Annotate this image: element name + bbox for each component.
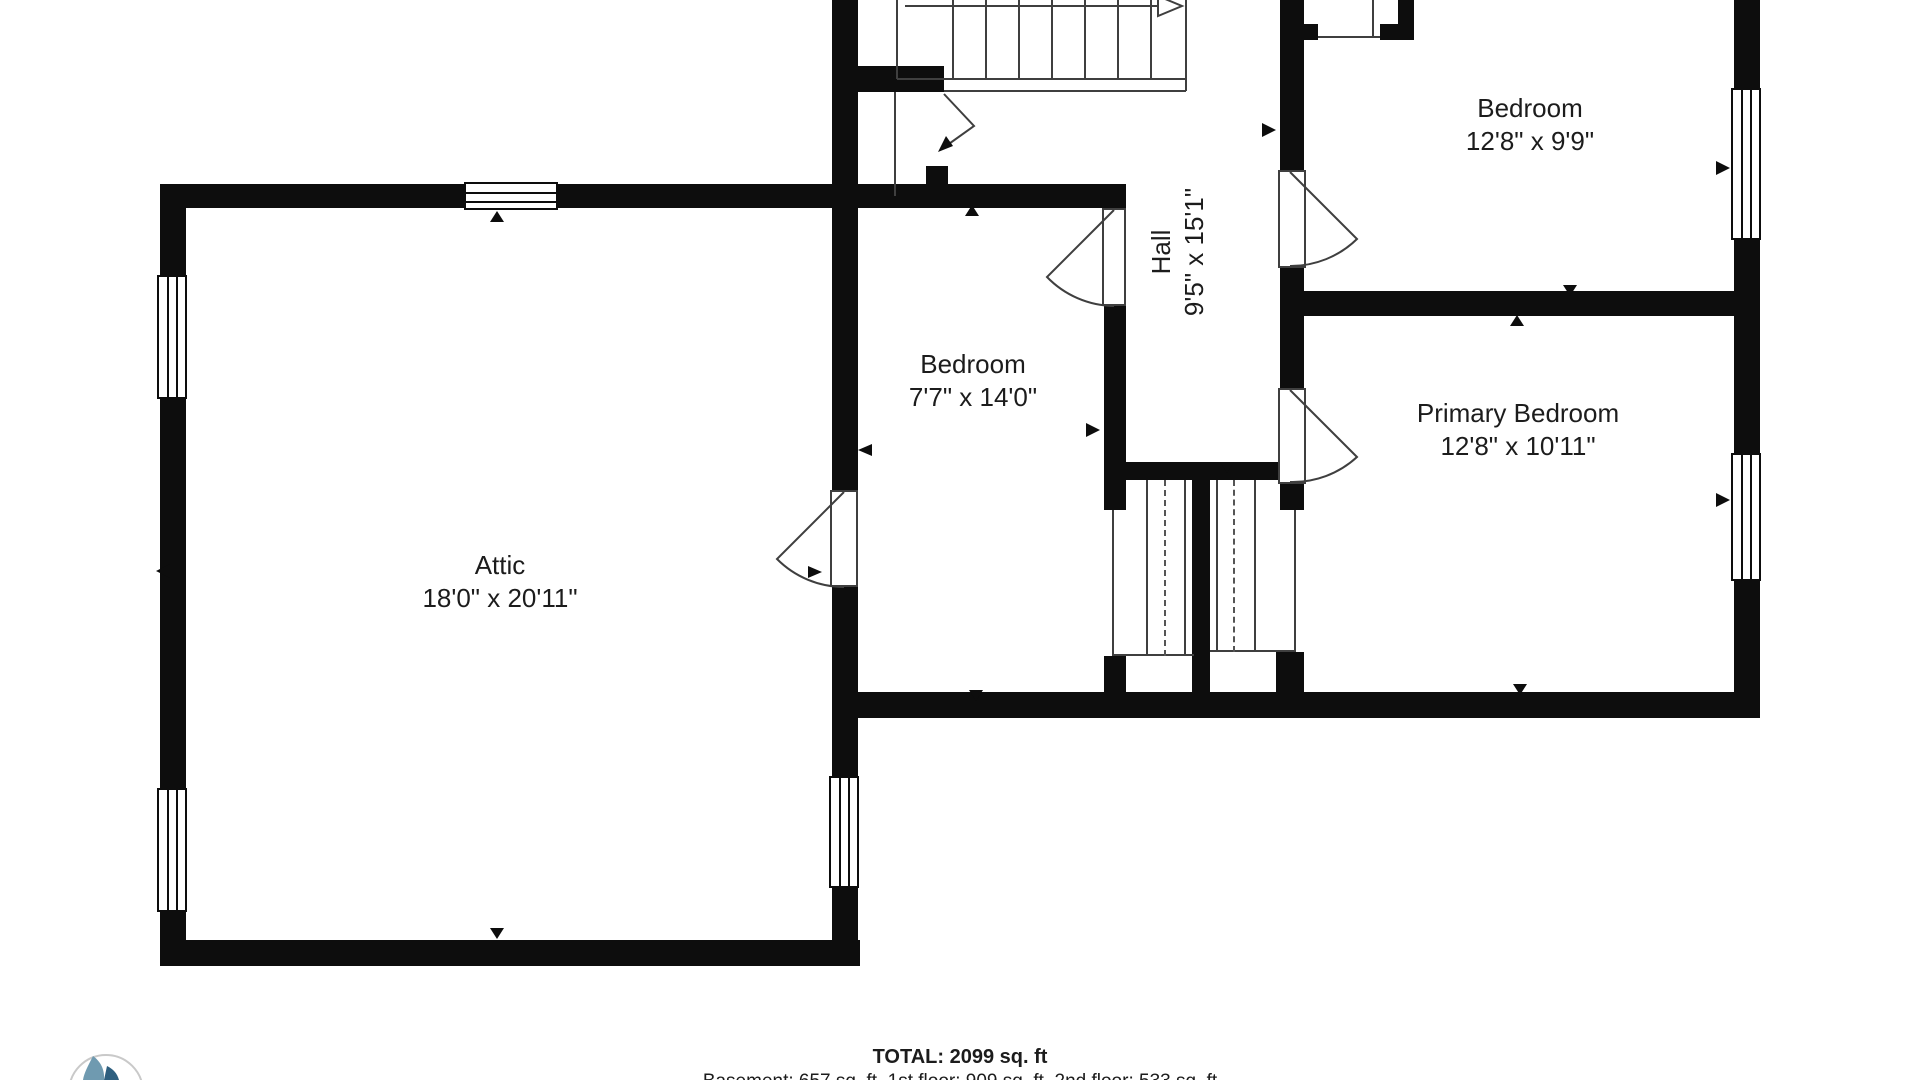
room-dimensions: 12'8" x 10'11" — [1417, 430, 1619, 463]
room-name: Attic — [422, 549, 577, 582]
room-name: Primary Bedroom — [1417, 397, 1619, 430]
room-dimensions: 9'5" x 15'1" — [1178, 188, 1211, 316]
staircase — [897, 0, 1186, 91]
area-breakdown-text: Basement: 657 sq. ft, 1st floor: 909 sq.… — [0, 1071, 1920, 1080]
room-dimensions: 18'0" x 20'11" — [422, 582, 577, 615]
floor-plan: Attic 18'0" x 20'11" Bedroom 7'7" x 14'0… — [0, 0, 1920, 1080]
room-name: Hall — [1145, 188, 1178, 316]
door-swing — [777, 94, 1357, 587]
wall-midpoint-markers-icon — [156, 123, 1730, 939]
plan-symbols-layer — [0, 0, 1920, 1080]
door-swing-arrowhead-icon — [938, 136, 953, 152]
room-name: Bedroom — [1466, 92, 1594, 125]
room-dimensions: 12'8" x 9'9" — [1466, 125, 1594, 158]
room-dimensions: 7'7" x 14'0" — [909, 381, 1037, 414]
room-label-primary-bedroom: Primary Bedroom 12'8" x 10'11" — [1417, 397, 1619, 463]
room-label-attic: Attic 18'0" x 20'11" — [422, 549, 577, 615]
stairs-up-direction-arrow-icon — [905, 0, 1182, 16]
room-name: Bedroom — [909, 348, 1037, 381]
room-label-bedroom-center: Bedroom 7'7" x 14'0" — [909, 348, 1037, 414]
room-label-bedroom-right: Bedroom 12'8" x 9'9" — [1466, 92, 1594, 158]
room-label-hall: Hall 9'5" x 15'1" — [1145, 188, 1211, 316]
total-area-text: TOTAL: 2099 sq. ft — [0, 1046, 1920, 1069]
